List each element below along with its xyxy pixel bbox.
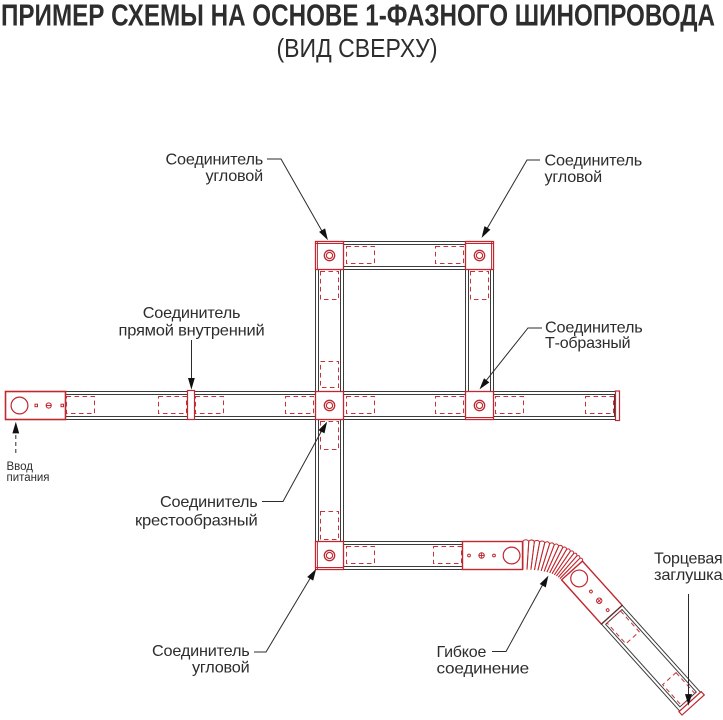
- svg-text:Соединитель: Соединитель: [160, 494, 258, 511]
- svg-text:ПРИМЕР СХЕМЫ НА ОСНОВЕ 1-ФАЗНО: ПРИМЕР СХЕМЫ НА ОСНОВЕ 1-ФАЗНОГО ШИНОПРО…: [1, 0, 715, 33]
- svg-text:Т-образный: Т-образный: [545, 335, 630, 352]
- svg-text:заглушка: заглушка: [654, 567, 723, 584]
- svg-text:угловой: угловой: [192, 660, 250, 677]
- svg-text:угловой: угловой: [545, 169, 603, 186]
- svg-text:прямой внутренний: прямой внутренний: [119, 323, 265, 340]
- svg-text:Торцевая: Торцевая: [654, 551, 723, 568]
- svg-text:питания: питания: [7, 472, 50, 484]
- svg-text:крестообразный: крестообразный: [135, 513, 258, 530]
- svg-text:Соединитель: Соединитель: [545, 153, 643, 170]
- svg-text:(ВИД СВЕРХУ): (ВИД СВЕРХУ): [277, 35, 438, 63]
- svg-text:Соединитель: Соединитель: [545, 320, 643, 337]
- svg-text:Соединитель: Соединитель: [143, 305, 241, 322]
- svg-text:Гибкое: Гибкое: [437, 644, 487, 661]
- svg-text:Соединитель: Соединитель: [152, 643, 250, 660]
- svg-text:соединение: соединение: [437, 661, 530, 678]
- svg-text:угловой: угловой: [206, 168, 264, 185]
- svg-text:Соединитель: Соединитель: [166, 152, 264, 169]
